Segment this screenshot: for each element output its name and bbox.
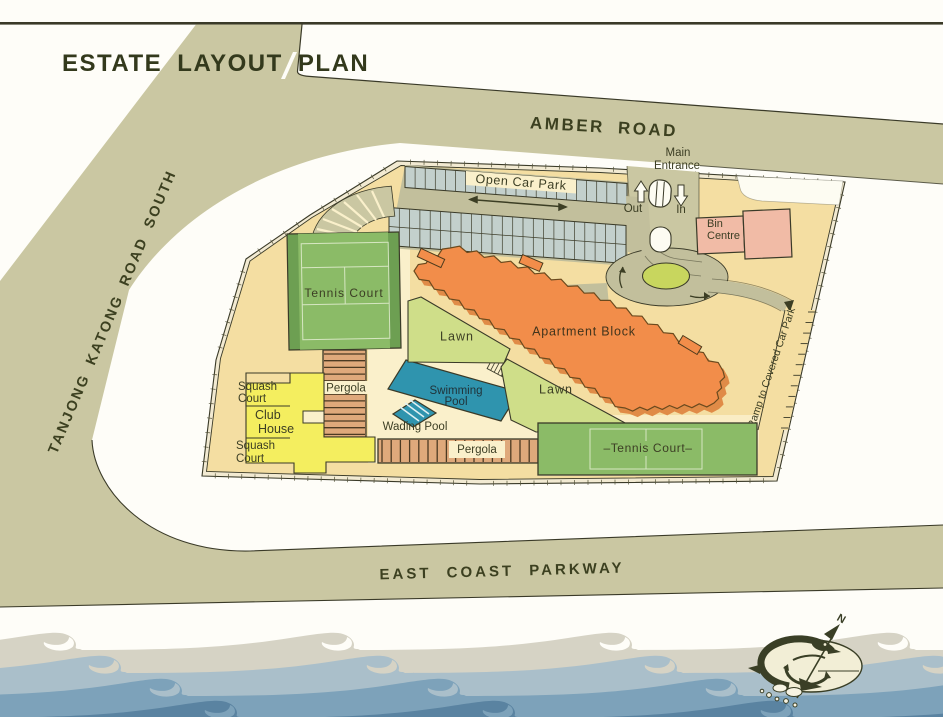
svg-text:ESTATE LAYOUT PLAN: ESTATE LAYOUT PLAN bbox=[62, 50, 369, 77]
svg-text:Wading Pool: Wading Pool bbox=[383, 421, 448, 433]
svg-text:Court: Court bbox=[238, 393, 267, 405]
svg-text:Court: Court bbox=[236, 453, 265, 465]
svg-text:Main: Main bbox=[666, 147, 691, 159]
svg-text:–Tennis Court–: –Tennis Court– bbox=[603, 441, 692, 455]
svg-text:Pergola: Pergola bbox=[326, 383, 366, 395]
svg-text:Bin: Bin bbox=[707, 218, 723, 230]
svg-text:Centre: Centre bbox=[707, 230, 740, 242]
svg-text:Squash: Squash bbox=[238, 381, 277, 393]
svg-text:In: In bbox=[676, 204, 686, 216]
svg-text:Lawn: Lawn bbox=[539, 382, 573, 396]
svg-text:Entrance: Entrance bbox=[654, 160, 700, 172]
svg-text:Club: Club bbox=[255, 408, 281, 422]
svg-text:House: House bbox=[258, 422, 294, 436]
svg-text:Pool: Pool bbox=[444, 396, 467, 408]
svg-text:Lawn: Lawn bbox=[440, 329, 474, 343]
svg-text:Out: Out bbox=[624, 203, 643, 215]
svg-text:Apartment Block: Apartment Block bbox=[532, 324, 636, 338]
svg-text:Pergola: Pergola bbox=[457, 444, 497, 456]
svg-text:Squash: Squash bbox=[236, 440, 275, 452]
svg-text:Tennis Court: Tennis Court bbox=[304, 286, 383, 300]
